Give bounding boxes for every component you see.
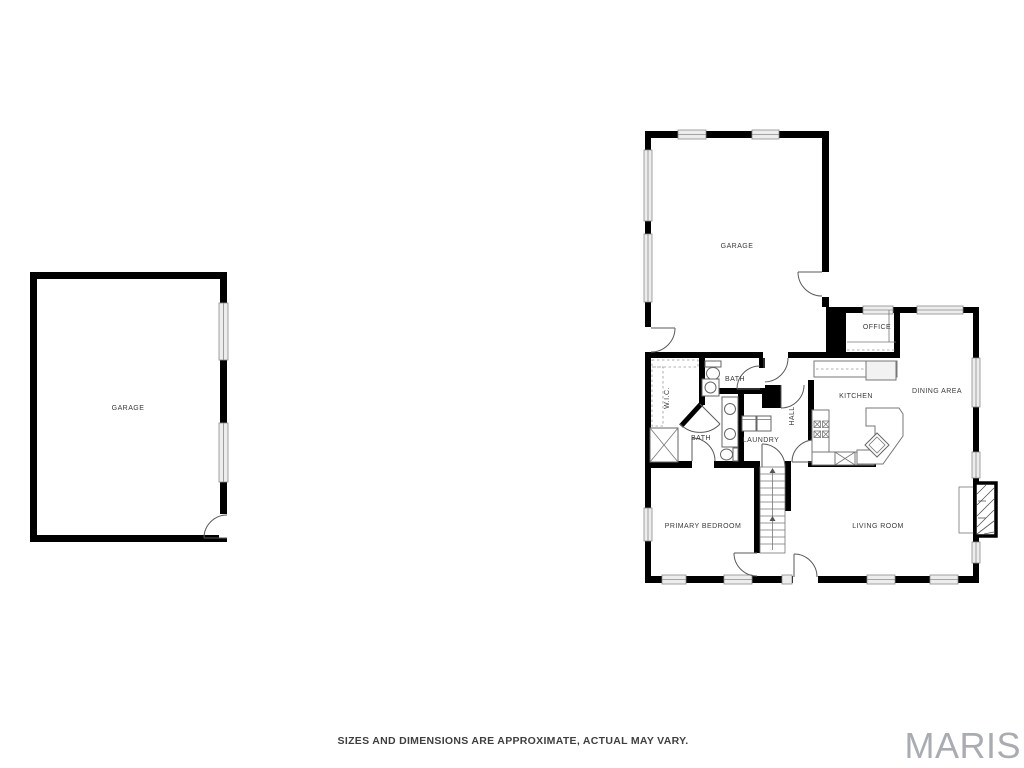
door (644, 327, 675, 352)
window (867, 575, 895, 584)
toilet (705, 361, 721, 380)
laundry-fixtures (742, 416, 771, 431)
window (678, 130, 706, 139)
room-label-detached-garage: GARAGE (112, 405, 145, 412)
window (930, 575, 958, 584)
window (219, 303, 228, 360)
stair-direction-arrow (770, 468, 776, 473)
room-label-bath-upper: BATH (725, 376, 745, 383)
door (763, 352, 788, 382)
window (662, 575, 686, 584)
bath-upper-fixtures (702, 361, 721, 396)
sink-vanity (702, 379, 719, 396)
room-label-bath-lower: BATH (691, 435, 711, 442)
door (781, 385, 804, 408)
refrigerator (866, 361, 896, 380)
wall (30, 272, 227, 279)
door (792, 440, 814, 462)
room-label-office: OFFICE (863, 324, 891, 331)
wall (30, 535, 227, 542)
dishwasher (835, 452, 855, 465)
washer (742, 416, 756, 431)
double-sink-vanity (722, 397, 738, 447)
room-label-dining-area: DINING AREA (912, 388, 962, 395)
room-label-hall: HALL (789, 406, 796, 425)
dryer (757, 416, 771, 431)
door (734, 553, 760, 576)
window (644, 234, 652, 302)
shower (650, 428, 678, 462)
room-label-wic: W.I.C. (664, 387, 671, 409)
floorplan-page: GARAGE (0, 0, 1024, 768)
window (972, 358, 980, 407)
window (219, 423, 228, 482)
stair-direction-arrow (770, 516, 776, 521)
window (917, 306, 963, 314)
window (972, 542, 980, 563)
window (644, 508, 652, 541)
wall (30, 272, 37, 542)
room-label-kitchen: KITCHEN (839, 393, 873, 400)
room-label-primary-bedroom: PRIMARY BEDROOM (665, 523, 742, 530)
fireplace (959, 483, 996, 536)
toilet (721, 448, 739, 461)
window (863, 306, 893, 314)
disclaimer-text: SIZES AND DIMENSIONS ARE APPROXIMATE, AC… (338, 735, 689, 747)
room-label-garage: GARAGE (721, 243, 754, 250)
maris-watermark: MARIS (904, 725, 1021, 766)
window (724, 575, 752, 584)
door (692, 438, 715, 468)
detached-garage: GARAGE (30, 272, 228, 542)
room-label-laundry: LAUNDRY (743, 437, 779, 444)
door (204, 514, 228, 538)
window (972, 452, 980, 478)
staircase (760, 467, 785, 553)
door (762, 444, 785, 467)
window (782, 575, 792, 584)
window (752, 130, 779, 139)
door (798, 272, 829, 297)
walls (645, 131, 979, 583)
main-house: GARAGE OFFICE DINING AREA KITCHEN W.I.C.… (644, 130, 996, 584)
floorplan-drawing: GARAGE (0, 0, 1024, 768)
window (644, 150, 652, 221)
door (793, 554, 818, 583)
kitchen-fixtures (812, 361, 903, 465)
hearth (959, 487, 975, 533)
room-label-living-room: LIVING ROOM (852, 523, 904, 530)
